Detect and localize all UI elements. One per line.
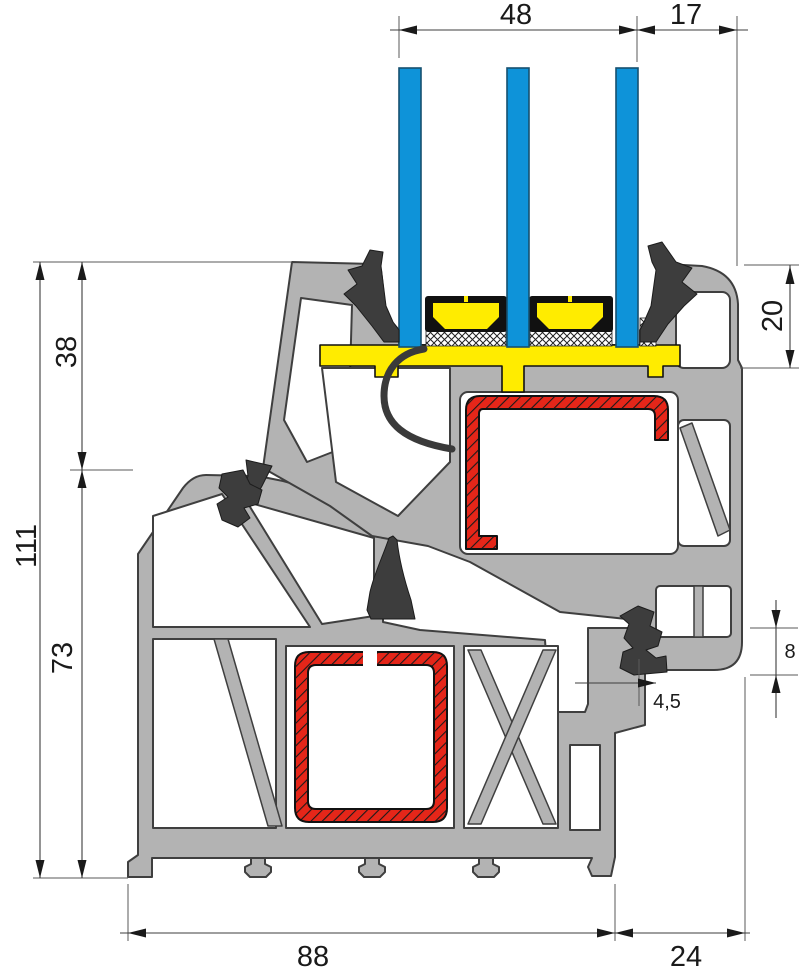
glass-pane-2: [507, 68, 529, 347]
frame-foot-peg: [473, 858, 499, 877]
spacer-core: [537, 303, 603, 329]
dim-label-20: 20: [757, 300, 789, 332]
dim-label-8: 8: [784, 641, 795, 663]
dim-label-24: 24: [670, 941, 702, 971]
frame-chamber: [570, 745, 600, 830]
frame-steel-chamber: [286, 646, 454, 828]
dim-label-73: 73: [47, 642, 79, 674]
frame-foot-peg: [245, 858, 271, 877]
dimension-right-8: 8: [750, 600, 798, 718]
dim-label-111: 111: [11, 524, 43, 568]
glazing-spacer-1: [425, 296, 507, 332]
dim-label-48: 48: [500, 0, 532, 31]
glazing-spacer-2: [529, 296, 613, 332]
spacer-core: [433, 303, 499, 329]
technical-drawing: 48 17 38 111 73 20 8 4,5: [0, 0, 800, 971]
frame-chamber: [153, 639, 276, 828]
dim-label-88: 88: [297, 941, 329, 971]
sash-steel-chamber: [460, 392, 678, 554]
steel-slot-gap: [363, 649, 377, 667]
spacer-vent-mark: [464, 296, 468, 302]
dimension-top: 48 17: [390, 0, 748, 266]
dimension-right-20: 20: [740, 265, 799, 368]
frame-foot-peg: [359, 858, 385, 877]
dim-label-4-5: 4,5: [653, 691, 681, 713]
glass-pane-1: [399, 68, 421, 347]
window-profile-cross-section: 48 17 38 111 73 20 8 4,5: [0, 0, 800, 971]
glass-pane-3: [616, 68, 638, 347]
dim-label-17: 17: [670, 0, 702, 31]
desiccant-hatch: [530, 330, 612, 346]
dim-label-38: 38: [51, 336, 83, 368]
spacer-vent-mark: [568, 296, 572, 302]
sash-web: [694, 586, 703, 637]
desiccant-hatch: [426, 330, 506, 346]
